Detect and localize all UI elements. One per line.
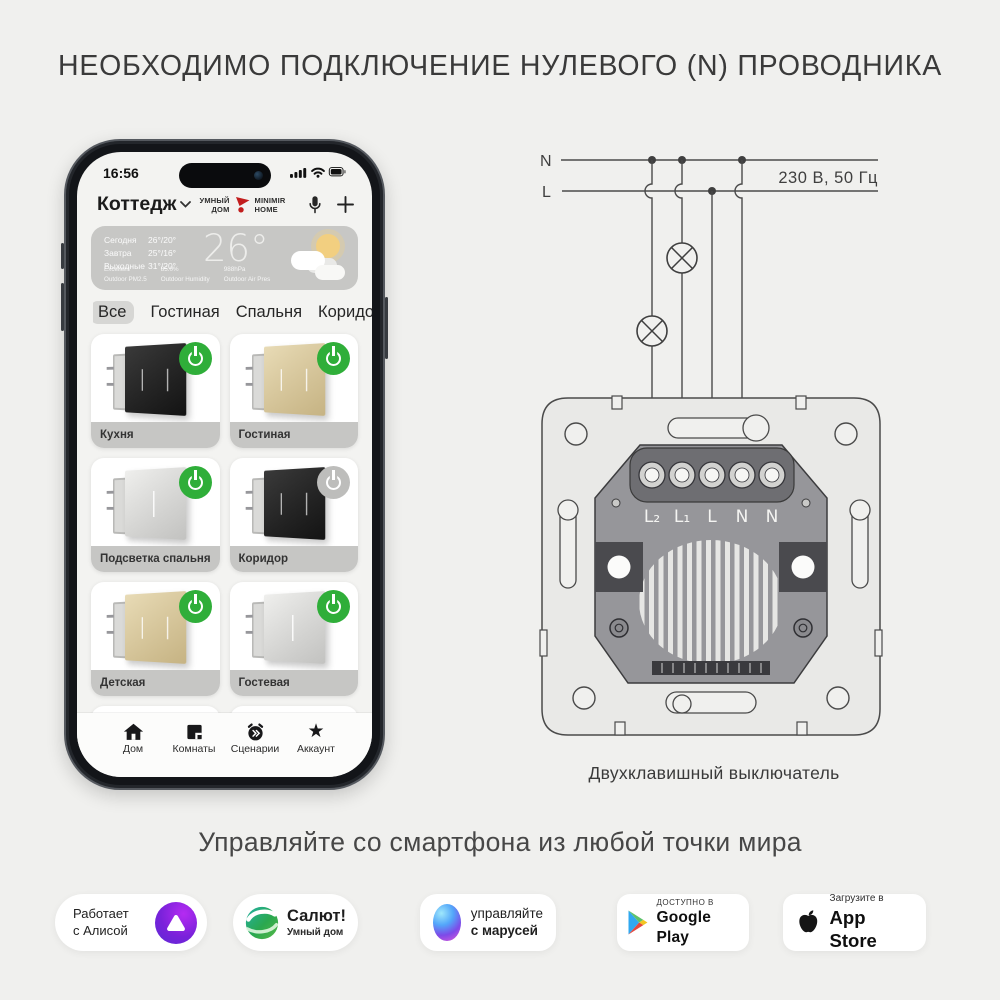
tab-bedroom[interactable]: Спальня bbox=[236, 303, 302, 322]
star-icon: ★ bbox=[307, 722, 324, 742]
power-toggle-on[interactable] bbox=[317, 342, 350, 375]
device-card[interactable]: Кухня bbox=[91, 334, 220, 448]
google-play-icon bbox=[628, 910, 648, 935]
dynamic-island bbox=[179, 163, 271, 188]
bottom-nav: Дом Комнаты Сценарии ★ А bbox=[77, 713, 372, 777]
brand-logo: УМНЫЙ ДОМ MINIMIR HOME bbox=[199, 196, 285, 214]
terminal-label: L bbox=[707, 507, 717, 527]
device-card[interactable]: Коридор bbox=[230, 458, 359, 572]
salut-line2: Умный дом bbox=[287, 927, 346, 940]
nav-label: Дом bbox=[123, 743, 143, 755]
battery-icon bbox=[329, 168, 346, 176]
signal-icon bbox=[290, 168, 306, 178]
device-name: Детская bbox=[91, 670, 220, 696]
brand-word-3: MINIMIR bbox=[255, 196, 286, 205]
device-card[interactable]: Подсветка спальня bbox=[91, 458, 220, 572]
power-toggle-on[interactable] bbox=[179, 342, 212, 375]
badge-salut[interactable]: Салют! Умный дом bbox=[233, 894, 358, 951]
power-toggle-on[interactable] bbox=[317, 590, 350, 623]
status-bar: 16:56 bbox=[77, 152, 372, 188]
weather-temp: 25°/16° bbox=[148, 247, 176, 260]
badge-marusia[interactable]: управляйте с марусей bbox=[420, 894, 556, 951]
badge-alice[interactable]: Работает с Алисой bbox=[55, 894, 207, 951]
diagram-caption: Двухклавишный выключатель bbox=[528, 763, 900, 784]
microphone-icon[interactable] bbox=[308, 195, 322, 215]
device-name: Подсветка спальня bbox=[91, 546, 220, 572]
weather-stat-value: 988hPa bbox=[224, 265, 271, 274]
appstore-line1: Загрузите в bbox=[830, 893, 913, 906]
room-tabs: Все Гостиная Спальня Коридор bbox=[93, 301, 372, 324]
phone-screen: 16:56 bbox=[77, 152, 372, 777]
mount-hole bbox=[573, 687, 595, 709]
screw bbox=[610, 619, 628, 637]
add-icon[interactable] bbox=[337, 196, 354, 213]
device-card[interactable]: Гостиная bbox=[230, 334, 359, 448]
lamp-icon bbox=[667, 243, 697, 273]
brand-word-2: ДОМ bbox=[199, 205, 229, 214]
device-card[interactable]: Гостевая bbox=[230, 582, 359, 696]
device-name: Коридор bbox=[230, 546, 359, 572]
chevron-down-icon bbox=[180, 201, 191, 208]
rooms-icon bbox=[185, 722, 204, 742]
nav-label: Сценарии bbox=[231, 743, 280, 755]
gplay-line2: Google Play bbox=[656, 908, 738, 947]
apple-icon bbox=[796, 908, 821, 938]
terminal-label: N bbox=[736, 507, 749, 527]
nav-item-scenarios[interactable]: Сценарии bbox=[227, 722, 283, 777]
sun-cloud-icon bbox=[290, 231, 348, 283]
nav-label: Аккаунт bbox=[297, 743, 335, 755]
power-toggle-off[interactable] bbox=[317, 466, 350, 499]
wiring-diagram: N L 230 В, 50 Гц bbox=[528, 142, 900, 764]
weather-temp: 26°/20° bbox=[148, 234, 176, 247]
marusia-icon bbox=[433, 904, 461, 941]
home-selector[interactable]: Коттедж bbox=[97, 193, 191, 216]
nav-item-home[interactable]: Дом bbox=[105, 722, 161, 777]
wifi-icon bbox=[312, 169, 324, 178]
phone-power-button bbox=[385, 297, 388, 359]
weather-stat-label: Outdoor Air Pres bbox=[224, 275, 271, 284]
weather-stat-label: Outdoor PM2.5 bbox=[104, 275, 147, 284]
tab-all[interactable]: Все bbox=[93, 301, 134, 324]
mount-hole bbox=[565, 423, 587, 445]
phone-mockup: 16:56 bbox=[64, 139, 385, 790]
brand-word-4: HOME bbox=[255, 205, 286, 214]
nav-item-account[interactable]: ★ Аккаунт bbox=[288, 722, 344, 777]
weather-widget[interactable]: Сегодня26°/20° Завтра25°/16° Выходные31°… bbox=[91, 226, 358, 290]
terminal-label: N bbox=[766, 507, 779, 527]
device-name: Кухня bbox=[91, 422, 220, 448]
alice-line1: Работает bbox=[73, 906, 129, 922]
alarm-clock-icon bbox=[245, 722, 266, 742]
mount-hole bbox=[827, 687, 849, 709]
salut-line1: Салют! bbox=[287, 906, 346, 927]
tab-corridor[interactable]: Коридор bbox=[318, 303, 372, 322]
alice-line2: с Алисой bbox=[73, 923, 129, 939]
device-grid: Кухня Гостиная Подсветка спальня Коридор bbox=[91, 334, 358, 777]
screw bbox=[794, 619, 812, 637]
weather-day: Завтра bbox=[104, 247, 148, 260]
tab-living-room[interactable]: Гостиная bbox=[150, 303, 219, 322]
marusia-line1: управляйте bbox=[471, 906, 543, 923]
app-header: Коттедж УМНЫЙ ДОМ MINIMIR HOME bbox=[77, 188, 372, 216]
terminal-label: L₁ bbox=[674, 507, 690, 527]
status-icons bbox=[290, 165, 346, 178]
tagline: Управляйте со смартфона из любой точки м… bbox=[0, 827, 1000, 858]
brand-word-1: УМНЫЙ bbox=[199, 196, 229, 205]
mount-hole bbox=[835, 423, 857, 445]
phase-line-label: L bbox=[542, 184, 551, 201]
marusia-line2: с марусей bbox=[471, 923, 543, 940]
weather-day: Сегодня bbox=[104, 234, 148, 247]
badge-google-play[interactable]: ДОСТУПНО В Google Play bbox=[617, 894, 749, 951]
terminal-label: L₂ bbox=[644, 507, 660, 527]
neutral-line-label: N bbox=[540, 153, 552, 170]
lamp-icon bbox=[637, 316, 667, 346]
power-toggle-on[interactable] bbox=[179, 466, 212, 499]
status-time: 16:56 bbox=[103, 165, 139, 181]
switch-mechanism: L₂ L₁ L N N bbox=[540, 396, 882, 735]
gplay-line1: ДОСТУПНО В bbox=[656, 898, 738, 908]
weather-stat-value: Excellent bbox=[104, 265, 147, 274]
page-title: НЕОБХОДИМО ПОДКЛЮЧЕНИЕ НУЛЕВОГО (N) ПРОВ… bbox=[0, 50, 1000, 83]
power-toggle-on[interactable] bbox=[179, 590, 212, 623]
appstore-line2: App Store bbox=[830, 906, 913, 952]
weather-stat-label: Outdoor Humidity bbox=[161, 275, 210, 284]
home-name: Коттедж bbox=[97, 193, 176, 216]
nav-label: Комнаты bbox=[173, 743, 216, 755]
salut-icon bbox=[245, 903, 279, 943]
nav-item-rooms[interactable]: Комнаты bbox=[166, 722, 222, 777]
badge-app-store[interactable]: Загрузите в App Store bbox=[783, 894, 926, 951]
device-card[interactable]: Детская bbox=[91, 582, 220, 696]
weather-stat-value: 85.0% bbox=[161, 265, 210, 274]
home-icon bbox=[123, 722, 144, 742]
current-temperature: 26° bbox=[203, 227, 269, 270]
device-name: Гостиная bbox=[230, 422, 359, 448]
device-name: Гостевая bbox=[230, 670, 359, 696]
brand-flag-icon bbox=[234, 196, 251, 213]
voltage-label: 230 В, 50 Гц bbox=[778, 169, 878, 187]
alice-icon bbox=[155, 902, 197, 944]
terminal bbox=[639, 462, 785, 488]
